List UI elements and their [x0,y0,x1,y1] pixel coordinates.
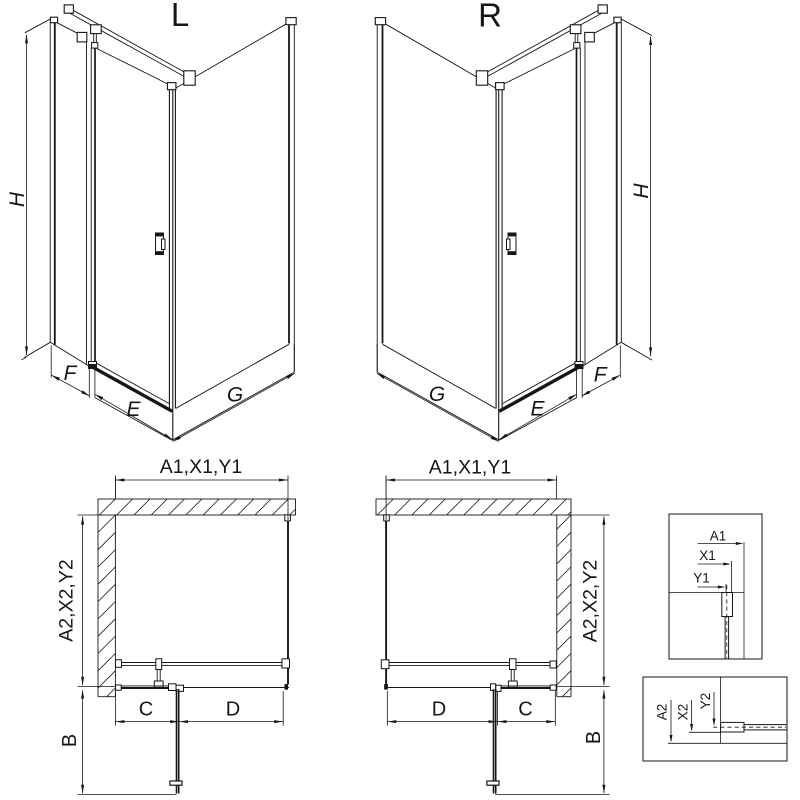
svg-text:D: D [226,698,240,720]
svg-text:B: B [59,734,81,747]
svg-text:H: H [629,183,652,199]
svg-text:A1,X1,Y1: A1,X1,Y1 [160,456,242,478]
svg-text:B: B [583,731,605,744]
svg-text:F: F [64,362,78,385]
svg-text:Y2: Y2 [698,693,713,710]
svg-text:G: G [429,383,445,406]
svg-text:X2: X2 [676,704,691,721]
svg-text:D: D [432,698,446,720]
svg-text:R: R [478,0,502,33]
svg-text:H: H [6,191,29,207]
svg-text:L: L [171,0,189,33]
svg-text:C: C [139,698,153,720]
svg-text:E: E [530,398,545,421]
svg-text:E: E [126,398,141,421]
svg-text:G: G [227,384,243,407]
svg-text:A2,X2,Y2: A2,X2,Y2 [579,560,601,642]
svg-text:C: C [518,698,532,720]
svg-text:A2: A2 [655,704,670,721]
svg-text:X1: X1 [699,548,716,563]
svg-text:A1,X1,Y1: A1,X1,Y1 [429,457,511,479]
svg-text:A2,X2,Y2: A2,X2,Y2 [56,559,78,641]
svg-text:A1: A1 [710,529,727,544]
svg-text:Y1: Y1 [693,571,710,586]
svg-text:F: F [594,364,608,387]
